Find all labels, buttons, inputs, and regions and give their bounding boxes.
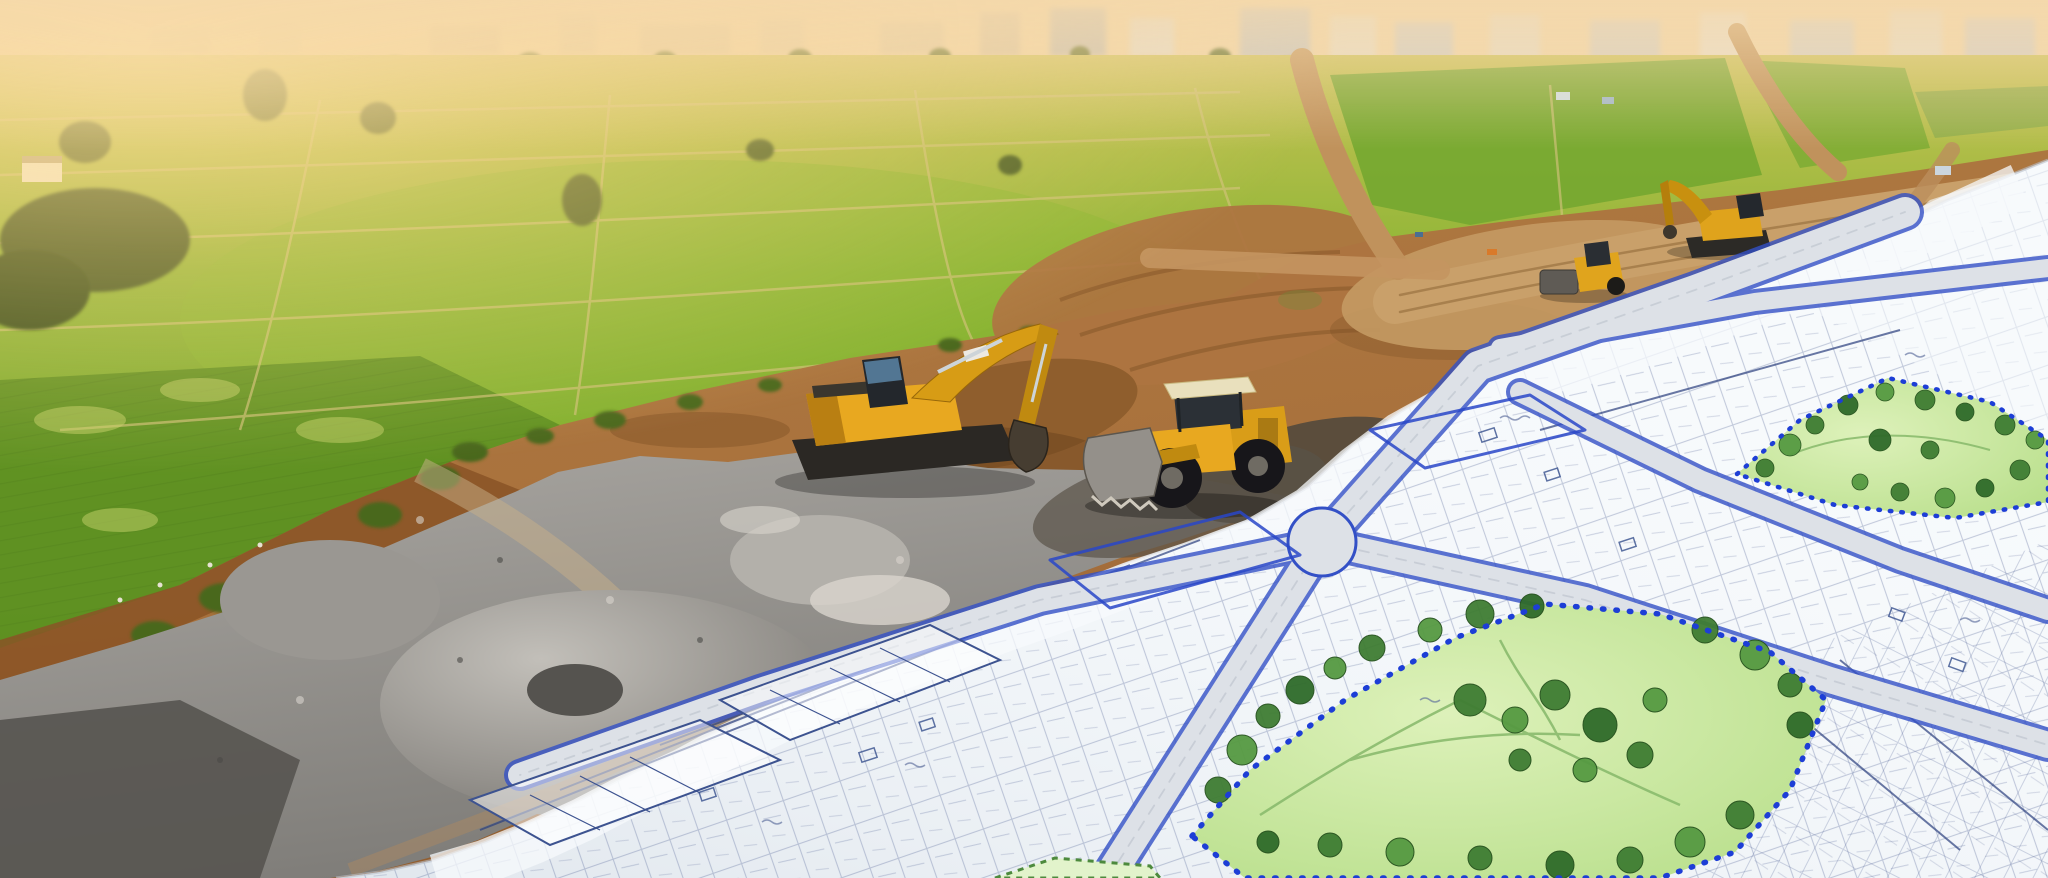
roller-cab	[1584, 241, 1611, 267]
mound-crater-1	[527, 664, 623, 716]
top-haze	[0, 0, 2048, 150]
distant-cab	[1736, 193, 1764, 219]
roller-wheel	[1607, 277, 1625, 295]
cab-post-front	[1178, 398, 1180, 432]
loader-bucket	[1084, 428, 1162, 502]
distant-bucket	[1663, 225, 1677, 239]
excavator-cab-window	[864, 358, 902, 384]
aerial-composite-photo	[0, 0, 2048, 878]
cab-post-rear	[1240, 392, 1242, 426]
front-hub	[1161, 467, 1183, 489]
roller-drum	[1540, 270, 1578, 294]
street-junction	[1288, 508, 1356, 576]
rear-hub	[1248, 456, 1268, 476]
